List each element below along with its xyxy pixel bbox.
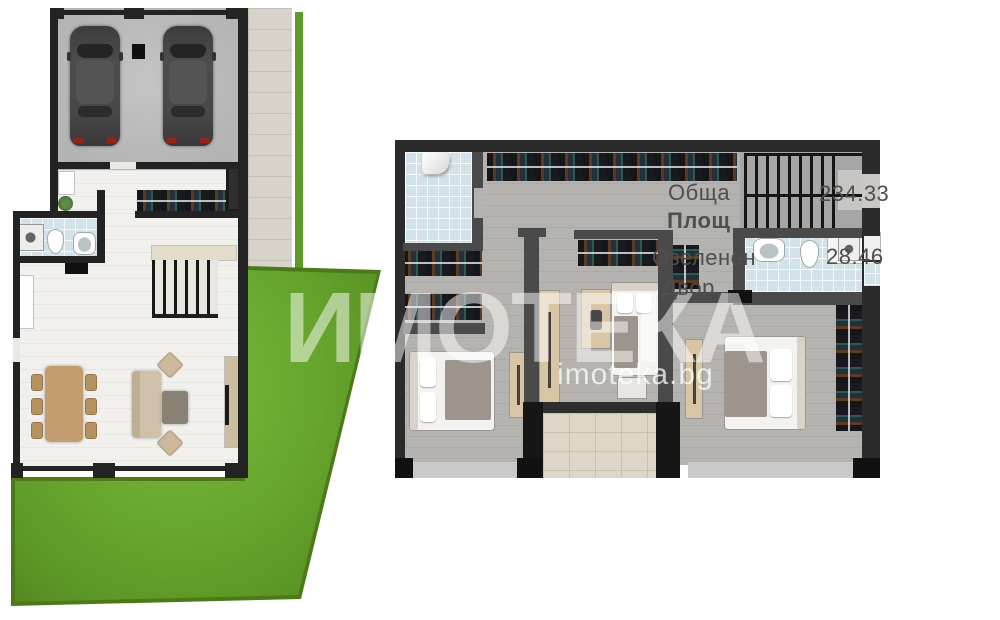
bathroom1-door [474, 188, 483, 218]
car-roof [76, 60, 114, 104]
dining-chair [31, 422, 43, 439]
watermark-site: imoteka.bg [557, 360, 714, 390]
bedroom2-bottom-wall [540, 402, 660, 413]
wall-chunk [225, 463, 248, 478]
car-taillight [166, 138, 177, 143]
wall-chunk [853, 458, 880, 478]
dining-chair [85, 398, 97, 415]
pillow [770, 385, 792, 417]
entry-wardrobe-rack [137, 190, 237, 212]
sofa [132, 371, 161, 438]
shower-towel-icon [422, 152, 449, 174]
car-taillight [199, 138, 210, 143]
closet-wall [135, 211, 243, 218]
pillow [770, 349, 792, 381]
car-rear-window [78, 106, 112, 117]
car-1 [70, 26, 120, 146]
car-mirror [67, 52, 71, 61]
dining-chair [31, 374, 43, 391]
stairs-top-rail [744, 153, 862, 156]
bathroom-top-wall [13, 211, 103, 218]
dining-table [45, 366, 83, 442]
car-taillight [106, 138, 117, 143]
corridor-wardrobe-rack [487, 153, 737, 181]
stairs-bath-wall [733, 228, 862, 238]
bottom-ledge [412, 462, 517, 478]
headboard [797, 337, 805, 429]
bathroom1-bottom-wall [403, 243, 483, 251]
stairs-landing [152, 246, 236, 260]
wall-chunk [93, 463, 115, 478]
terrace-right-wall [656, 402, 680, 478]
hall-shelf [59, 172, 74, 194]
garage-left-wall [50, 8, 58, 170]
upper-top-wall [395, 140, 880, 152]
total-area-label-line2: Площ [667, 209, 731, 233]
paved-walkway [248, 8, 292, 268]
hall-divider-wall [97, 190, 105, 263]
staircase-ground [152, 260, 218, 314]
washing-machine-icon [18, 225, 43, 250]
stairs-rail [152, 314, 218, 318]
car-mirror [119, 52, 123, 61]
floor-plan-canvas: ИМОТЕКА imoteka.bg Обща Площ 234.33 Озел… [0, 0, 1000, 620]
car-2 [163, 26, 213, 146]
car-mirror [212, 52, 216, 61]
car-windshield [77, 44, 113, 58]
wall-chunk [395, 458, 413, 478]
car-roof [169, 60, 207, 104]
total-area-value: 234.33 [819, 182, 889, 206]
garage-top-wall [50, 10, 248, 15]
hedge-strip [295, 12, 303, 268]
sink-icon [754, 239, 784, 261]
coffee-table [162, 391, 188, 424]
wall-chunk [11, 463, 23, 478]
dining-chair [31, 398, 43, 415]
tv-icon [225, 385, 229, 425]
garage-pillar [132, 44, 145, 59]
bathroom-bottom-wall [13, 256, 103, 263]
car-mirror [160, 52, 164, 61]
window-gap [13, 338, 20, 362]
hall-left-wall [50, 162, 58, 218]
wardrobe-rack [578, 240, 658, 266]
car-taillight [73, 138, 84, 143]
car-rear-window [171, 106, 205, 117]
car-windshield [170, 44, 206, 58]
sink-icon [74, 233, 95, 254]
house-bottom-wall [13, 466, 245, 471]
dining-chair [85, 422, 97, 439]
plant-icon [58, 196, 73, 211]
dining-chair [85, 374, 97, 391]
wall-chunk [517, 458, 542, 478]
wardrobe-rack-vertical [836, 303, 862, 431]
terrace [543, 413, 656, 478]
garage-door-gap [110, 162, 136, 169]
garage-hall-wall [50, 162, 248, 169]
yard-area-value: 28.46 [826, 245, 884, 269]
wall-chunk [124, 8, 144, 19]
bottom-ledge [688, 462, 853, 478]
yard-area-label-line2: Двор [662, 276, 715, 300]
house-right-wall [238, 8, 248, 468]
total-area-label-line1: Обща [668, 181, 730, 205]
yard-area-label-line1: Озеленен [652, 246, 756, 270]
pillow [420, 392, 436, 422]
sofa-backrest [132, 371, 140, 438]
